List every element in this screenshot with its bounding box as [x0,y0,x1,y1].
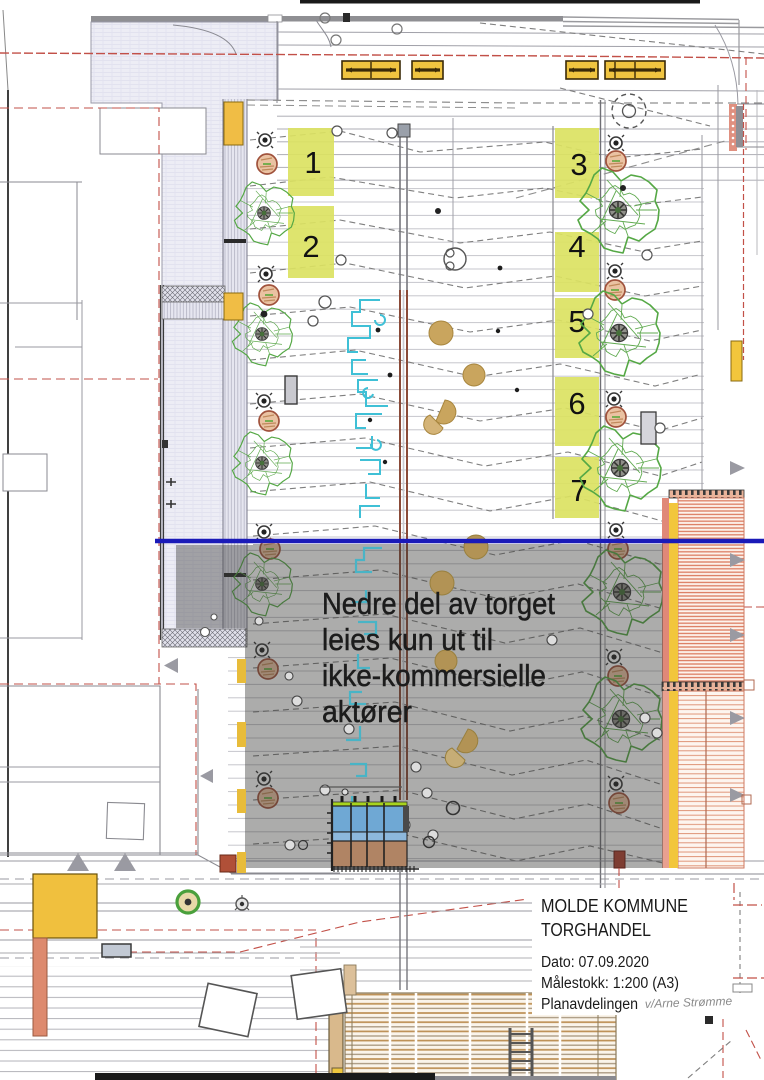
svg-text:Nedre del av torget: Nedre del av torget [322,586,555,621]
svg-text:Målestokk: 1:200 (A3): Målestokk: 1:200 (A3) [541,975,679,992]
svg-text:aktører: aktører [322,694,412,729]
svg-text:6: 6 [568,386,585,421]
svg-text:7: 7 [570,473,587,508]
svg-text:3: 3 [570,147,587,182]
svg-text:MOLDE KOMMUNE: MOLDE KOMMUNE [541,896,688,916]
svg-text:4: 4 [568,229,585,264]
svg-text:ikke-kommersielle: ikke-kommersielle [322,658,546,693]
svg-text:1: 1 [304,145,321,180]
svg-text:Dato: 07.09.2020: Dato: 07.09.2020 [541,954,649,971]
svg-text:leies kun ut til: leies kun ut til [322,622,493,657]
svg-text:Planavdelingen: Planavdelingen [541,996,638,1013]
svg-text:TORGHANDEL: TORGHANDEL [541,920,651,940]
svg-text:2: 2 [302,229,319,264]
